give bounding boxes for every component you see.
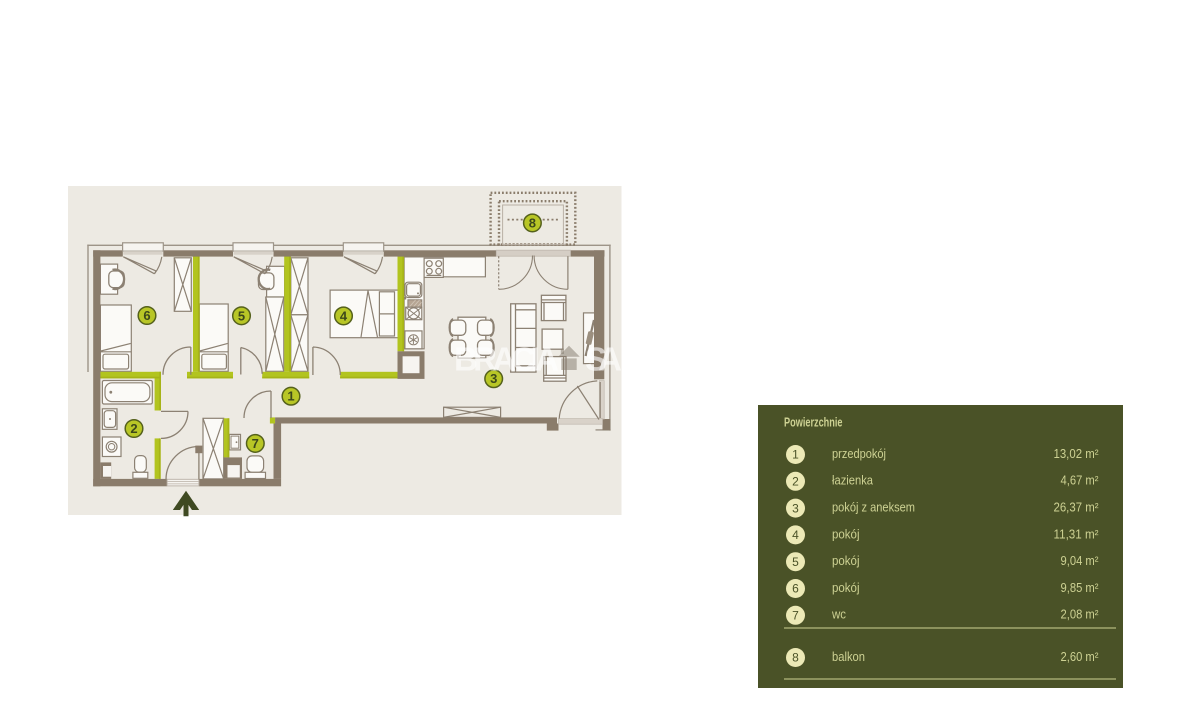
svg-text:8: 8 bbox=[529, 215, 536, 230]
svg-text:5: 5 bbox=[792, 555, 799, 569]
svg-text:przedpokój: przedpokój bbox=[832, 446, 886, 461]
svg-text:pokój: pokój bbox=[832, 553, 860, 568]
svg-text:łazienka: łazienka bbox=[832, 473, 874, 488]
svg-text:4: 4 bbox=[792, 528, 799, 542]
svg-text:1: 1 bbox=[792, 448, 799, 462]
svg-text:pokój z aneksem: pokój z aneksem bbox=[832, 500, 915, 515]
svg-text:BRACIA: BRACIA bbox=[454, 341, 560, 378]
svg-text:8: 8 bbox=[792, 651, 799, 665]
svg-text:7: 7 bbox=[252, 436, 259, 451]
svg-text:4: 4 bbox=[340, 308, 348, 323]
svg-text:2: 2 bbox=[792, 475, 799, 489]
svg-text:5: 5 bbox=[238, 308, 245, 323]
svg-text:4,67 m²: 4,67 m² bbox=[1061, 473, 1100, 488]
svg-text:1: 1 bbox=[287, 389, 294, 404]
svg-text:13,02 m²: 13,02 m² bbox=[1054, 446, 1100, 461]
svg-text:9,04 m²: 9,04 m² bbox=[1061, 553, 1100, 568]
svg-text:9,85 m²: 9,85 m² bbox=[1061, 580, 1100, 595]
svg-text:3: 3 bbox=[792, 501, 799, 515]
svg-text:7: 7 bbox=[792, 609, 799, 623]
svg-text:2,60 m²: 2,60 m² bbox=[1061, 649, 1100, 664]
svg-text:26,37 m²: 26,37 m² bbox=[1054, 500, 1100, 515]
svg-text:balkon: balkon bbox=[832, 649, 865, 664]
svg-text:2,08 m²: 2,08 m² bbox=[1061, 607, 1100, 622]
svg-text:6: 6 bbox=[143, 308, 150, 323]
svg-text:Powierzchnie: Powierzchnie bbox=[784, 416, 843, 430]
svg-text:SA: SA bbox=[585, 341, 623, 378]
svg-text:6: 6 bbox=[792, 582, 799, 596]
svg-text:11,31 m²: 11,31 m² bbox=[1054, 526, 1100, 541]
svg-text:pokój: pokój bbox=[832, 580, 860, 595]
svg-text:2: 2 bbox=[130, 421, 137, 436]
svg-text:wc: wc bbox=[831, 607, 846, 622]
svg-text:pokój: pokój bbox=[832, 526, 860, 541]
